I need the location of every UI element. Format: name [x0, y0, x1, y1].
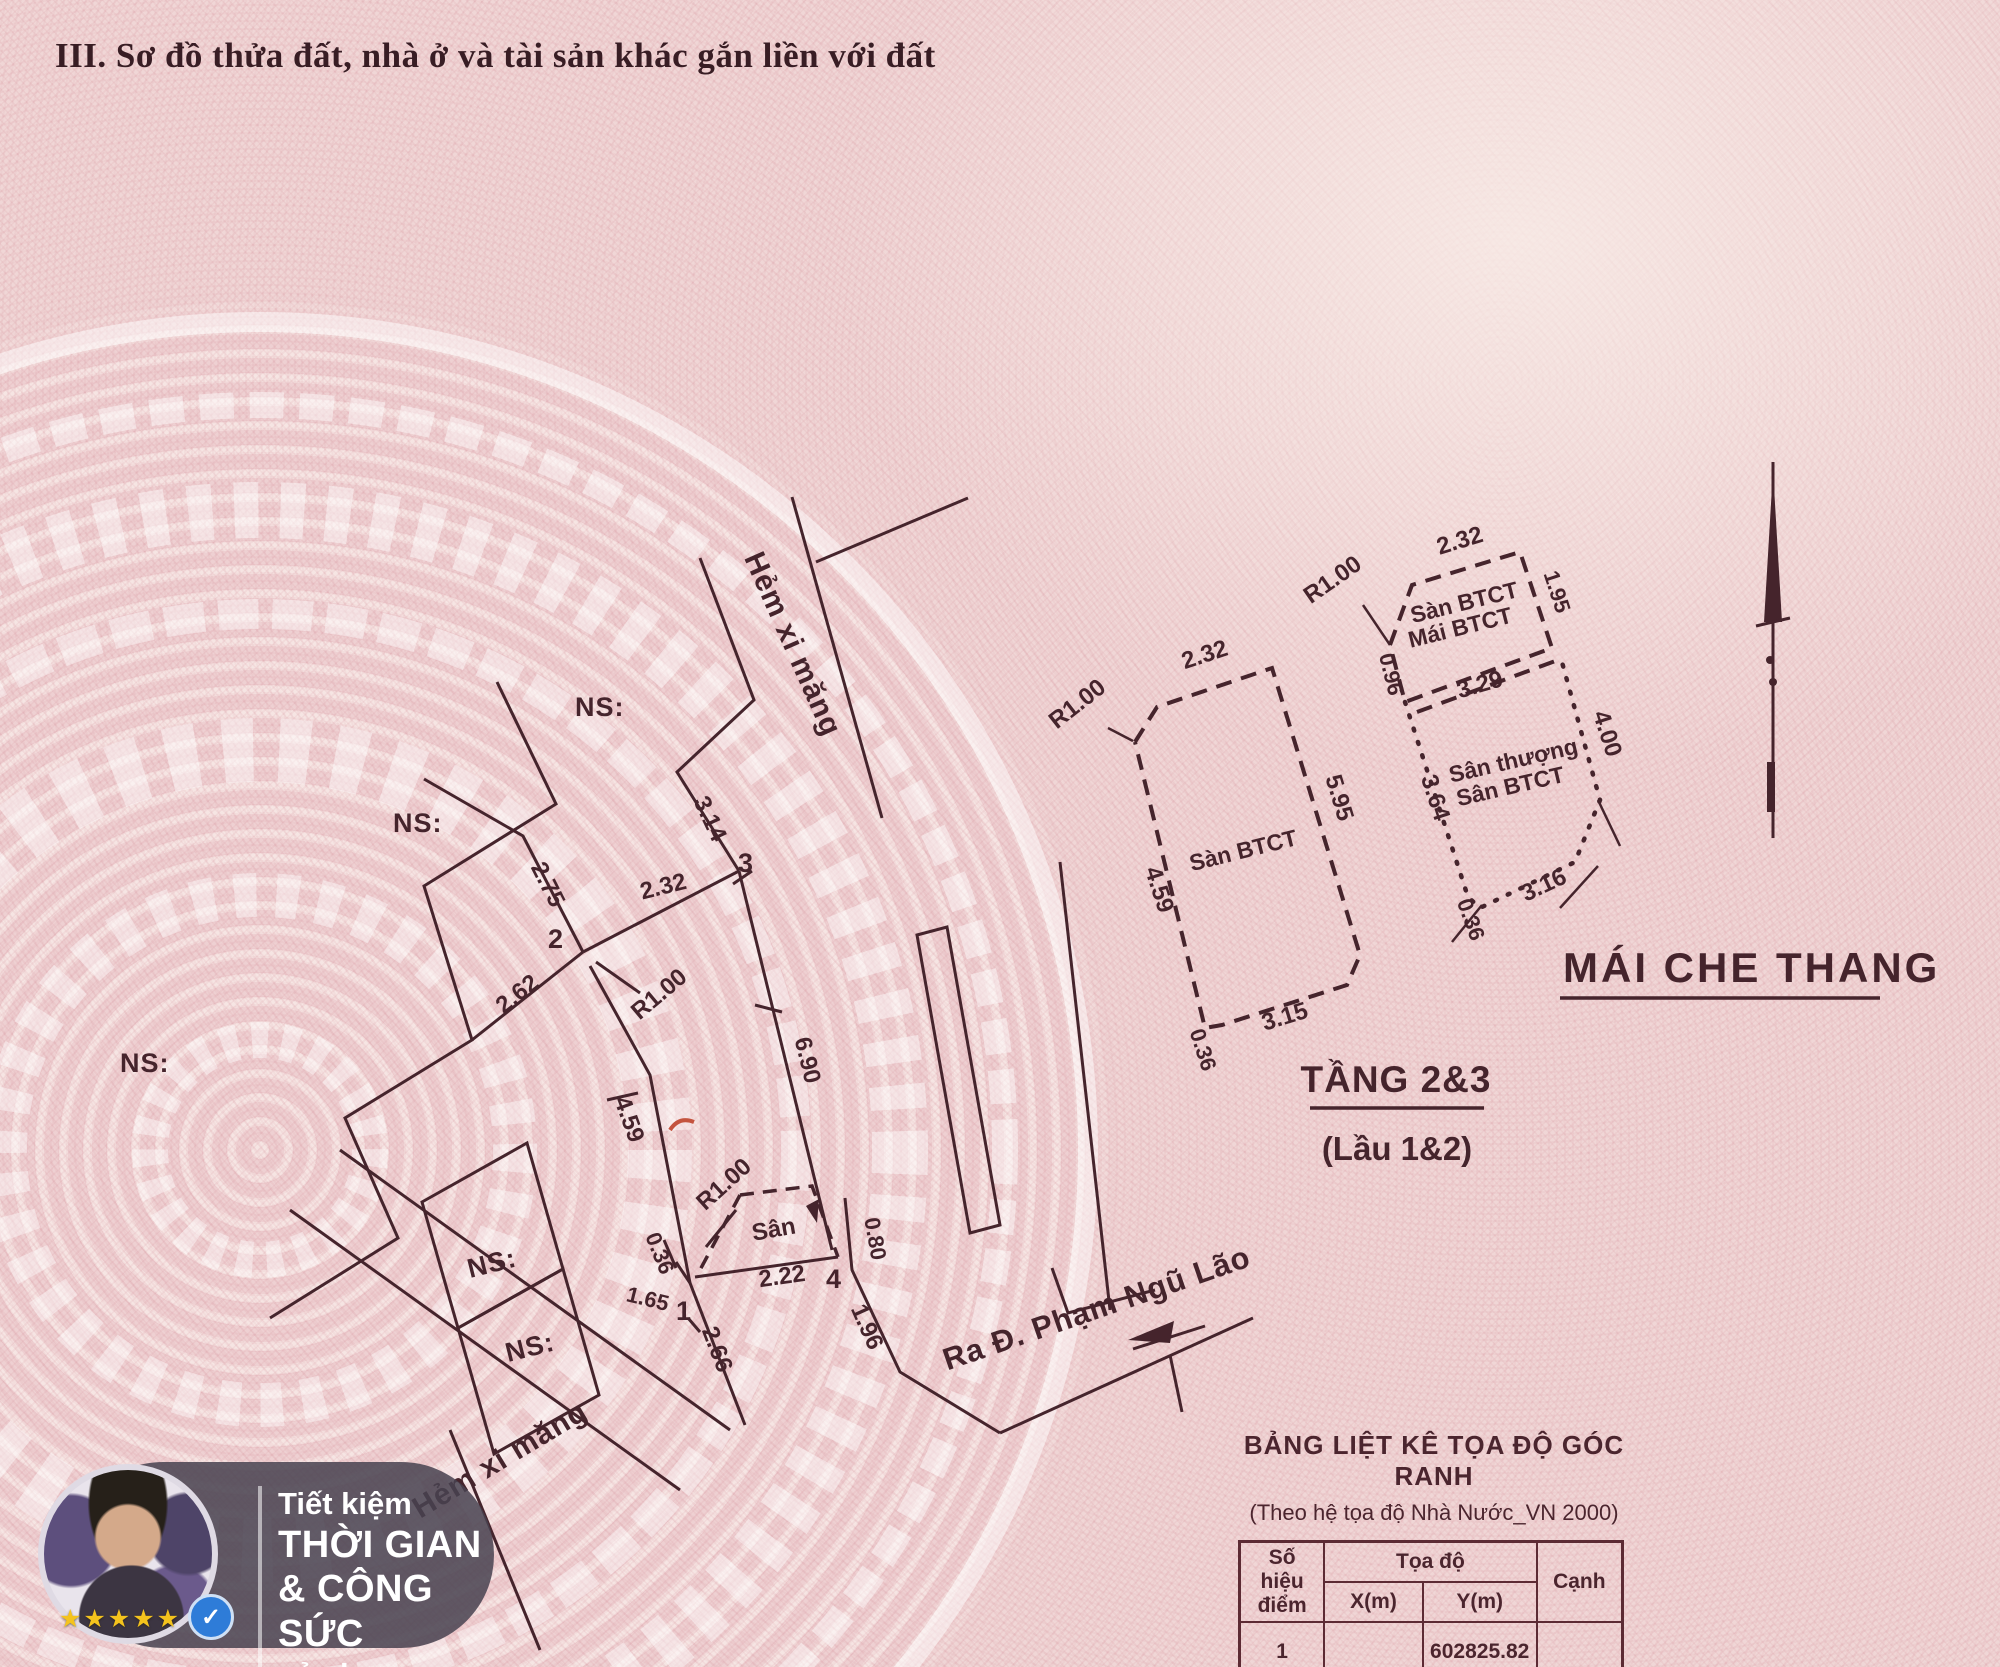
north-arrow-ornament [1769, 678, 1777, 686]
fl-left-left-4.59: 4.59 [1139, 863, 1179, 916]
fl-left-R1.00: R1.00 [1044, 674, 1111, 735]
point-3-label: 3 [738, 848, 753, 878]
dim-2.62: 2.62 [491, 969, 544, 1019]
dim-2.66: 2.66 [696, 1323, 738, 1376]
fl-left-0.36: 0.36 [1185, 1025, 1222, 1073]
fl-left-right-5.95: 5.95 [1319, 772, 1358, 825]
fl-left-area-label: Sàn BTCT [1187, 824, 1300, 876]
radius-leader [706, 1210, 736, 1247]
drum-ring [5, 895, 515, 1405]
tang-caption: TẦNG 2&3 [1301, 1059, 1492, 1100]
coordinate-table: Số hiệu điểm Tọa độ Cạnh X(m) Y(m) 1 602… [1238, 1540, 1624, 1667]
mai-che-thang-caption: MÁI CHE THANG [1563, 944, 1940, 991]
ns-label-3: NS: [120, 1048, 170, 1078]
watermark-line-3: & CÔNG SỨC [278, 1567, 506, 1657]
fr-R1.00: R1.00 [1299, 550, 1367, 609]
radius-leader [1108, 728, 1133, 741]
ns-label-4: NS: [464, 1243, 519, 1284]
radius-leader [1363, 605, 1390, 645]
floorplan-right-labels: R1.00 2.32 1.95 0.96 3.29 Sàn BTCT Mái B… [1299, 521, 1627, 944]
cell-edge-1: 6.59 [1537, 1622, 1623, 1667]
five-star-rating: ★★★★★ [50, 1604, 190, 1634]
point-2-label: 2 [548, 924, 563, 954]
street-tick [1170, 1355, 1182, 1412]
coordinate-table-title: BẢNG LIỆT KÊ TỌA ĐỘ GÓC RANH [1238, 1430, 1630, 1492]
page-title: III. Sơ đồ thửa đất, nhà ở và tài sản kh… [55, 36, 936, 76]
fr-3.29: 3.29 [1454, 665, 1506, 704]
cell-x-1 [1324, 1622, 1423, 1667]
cell-y-1: 602825.82 [1423, 1622, 1537, 1667]
cell-point-1: 1 [1240, 1622, 1325, 1667]
coordinate-table-block: BẢNG LIỆT KÊ TỌA ĐỘ GÓC RANH (Theo hệ tọ… [1238, 1430, 1630, 1667]
fr-3.16: 3.16 [1517, 863, 1571, 907]
captions: MÁI CHE THANG TẦNG 2&3 (Lầu 1&2) [1301, 944, 1941, 1167]
col-header-coord: Tọa độ [1324, 1542, 1536, 1583]
watermark-line-2: THỜI GIAN [278, 1523, 506, 1568]
yard-marker-triangle [806, 1199, 819, 1223]
coordinate-table-subtitle: (Theo hệ tọa độ Nhà Nước_VN 2000) [1238, 1500, 1630, 1526]
lau-caption: (Lầu 1&2) [1322, 1130, 1472, 1167]
table-row: 1 602825.82 6.59 [1240, 1622, 1623, 1667]
verified-check-icon: ✓ [188, 1594, 234, 1640]
north-arrow-ornament [1766, 656, 1774, 664]
boundary-line [816, 498, 968, 562]
ns-label-2: NS: [393, 808, 443, 838]
col-header-point-line2: điểm [1258, 1594, 1307, 1617]
watermark-text: Tiết kiệm THỜI GIAN & CÔNG SỨC của bạn [258, 1486, 506, 1667]
col-header-point: Số hiệu điểm [1240, 1542, 1325, 1623]
fr-1.95: 1.95 [1539, 567, 1576, 615]
col-header-x: X(m) [1324, 1582, 1423, 1622]
fl-left-bottom-3.15: 3.15 [1259, 997, 1312, 1036]
north-arrow [1756, 462, 1790, 838]
fl-left-top-2.32: 2.32 [1178, 635, 1231, 675]
north-arrow-head [1764, 470, 1782, 622]
dim-4.59: 4.59 [608, 1093, 649, 1146]
drum-ring [150, 1040, 370, 1260]
point-4-label: 4 [826, 1264, 841, 1294]
col-header-y: Y(m) [1423, 1582, 1537, 1622]
watermark-line-4: của bạn [278, 1657, 506, 1667]
channel-watermark: ★★★★★ ✓ Tiết kiệm THỜI GIAN & CÔNG SỨC c… [36, 1456, 506, 1656]
certificate-page: III. Sơ đồ thửa đất, nhà ở và tài sản kh… [0, 0, 2000, 1667]
dim-2.22: 2.22 [757, 1260, 807, 1293]
ns-label-5: NS: [502, 1327, 557, 1368]
col-header-point-line1: Số hiệu [1261, 1546, 1304, 1593]
dim-R1.00-b: R1.00 [691, 1153, 757, 1216]
col-header-edge: Cạnh [1537, 1542, 1623, 1623]
fr-top-2.32: 2.32 [1434, 521, 1487, 560]
point-1-label: 1 [676, 1296, 691, 1326]
dim-leader [1598, 800, 1620, 846]
street-arrow-head [1128, 1321, 1174, 1343]
watermark-line-1: Tiết kiệm [278, 1486, 506, 1523]
fr-4.00: 4.00 [1587, 707, 1627, 760]
fr-0.96: 0.96 [1374, 650, 1409, 698]
ns-label-1: NS: [575, 692, 625, 722]
